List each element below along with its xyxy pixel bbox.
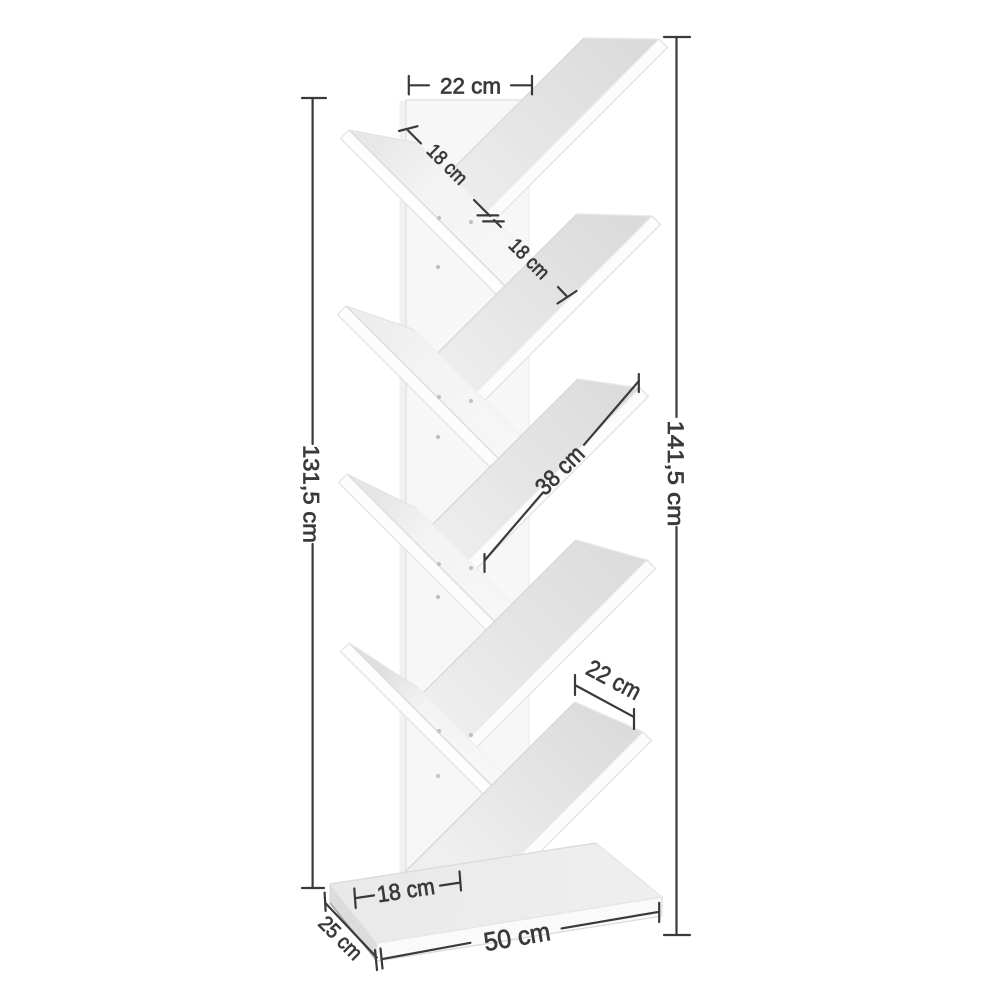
svg-text:22 cm: 22 cm <box>582 655 646 706</box>
svg-text:22 cm: 22 cm <box>440 74 501 99</box>
svg-text:131,5 cm: 131,5 cm <box>299 445 324 543</box>
svg-text:141,5 cm: 141,5 cm <box>663 421 688 527</box>
